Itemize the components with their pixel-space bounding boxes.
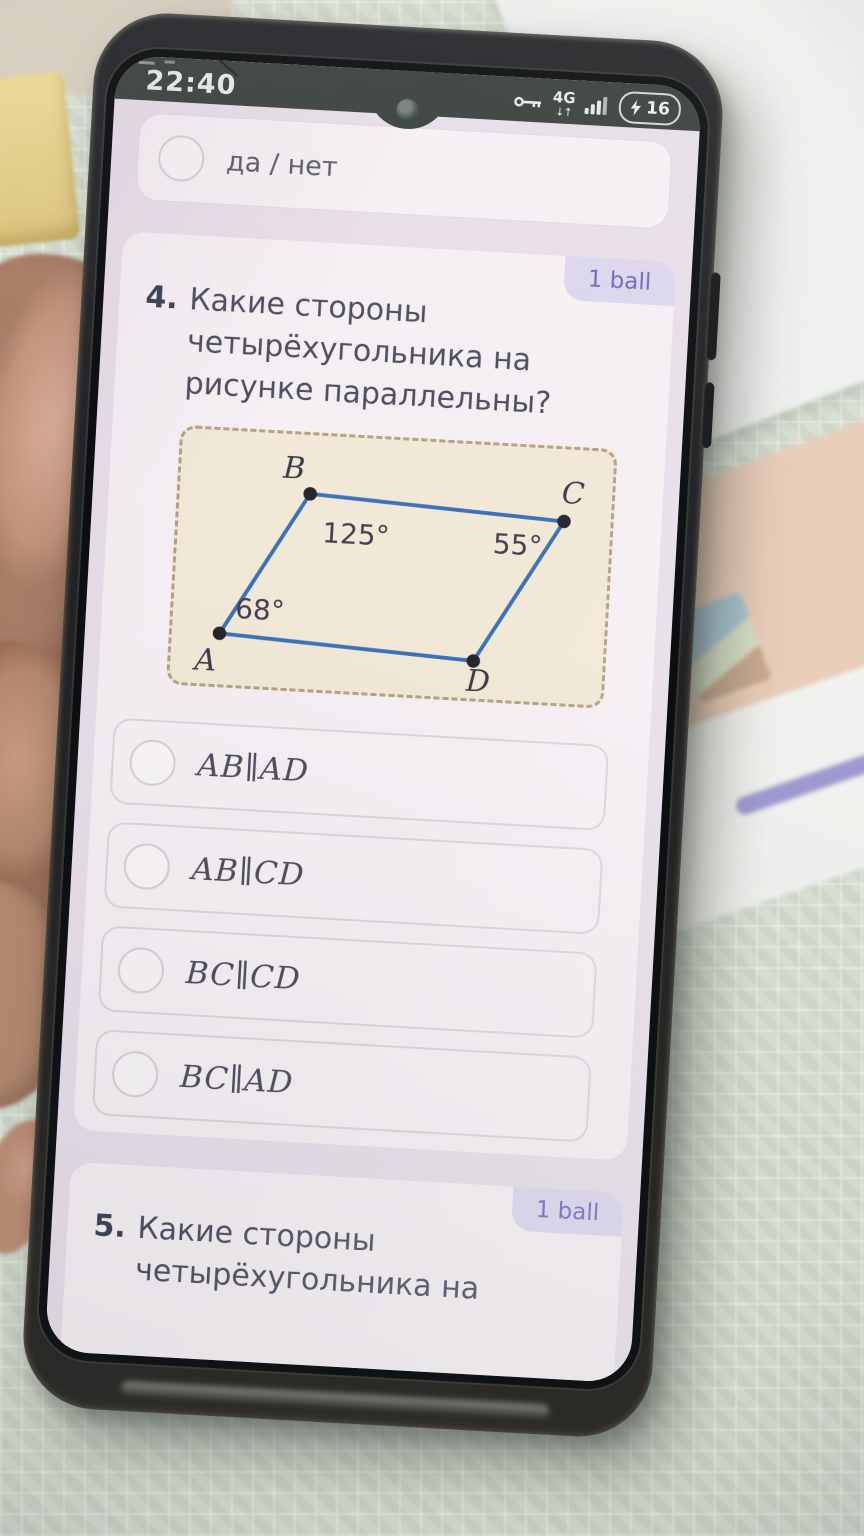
vertex-label-B: B	[281, 451, 306, 487]
clock: 22:40	[145, 65, 238, 101]
answer-option[interactable]: AB∥CD	[103, 821, 603, 935]
answer-option[interactable]: AB∥AD	[109, 718, 609, 832]
radio-button[interactable]	[157, 134, 205, 182]
vertex-label-A: A	[191, 642, 217, 678]
charging-icon	[630, 99, 643, 116]
vertex-label-D: D	[464, 663, 491, 699]
radio-button[interactable]	[111, 1050, 159, 1098]
option-label: BC∥CD	[185, 955, 302, 997]
option-label: AB∥AD	[196, 747, 310, 789]
question-text: Какие стороны четырёхугольника на	[134, 1208, 578, 1316]
front-camera	[396, 98, 419, 121]
parallelogram-diagram: B C A D 125° 55° 68°	[169, 428, 615, 706]
points-badge: 1 ball	[511, 1187, 625, 1237]
status-icons: 4G ↓↑ 16	[512, 85, 682, 126]
points-badge: 1 ball	[563, 256, 677, 306]
answer-option-yes-no[interactable]: да / нет	[135, 112, 673, 230]
option-label: AB∥CD	[191, 851, 306, 893]
angle-label-C: 55°	[492, 527, 543, 563]
answer-option[interactable]: BC∥AD	[92, 1029, 592, 1143]
photo-scene: 22:40 4G ↓↑	[0, 0, 864, 1536]
angle-label-A: 68°	[234, 592, 285, 628]
option-label: да / нет	[225, 145, 338, 182]
radio-button[interactable]	[128, 739, 176, 787]
vertex-label-C: C	[561, 476, 586, 512]
phone-screen: 22:40 4G ↓↑	[45, 55, 703, 1384]
screen-crack	[139, 61, 155, 65]
signal-bars-icon	[585, 95, 610, 116]
screen-crack	[165, 60, 175, 64]
question-5-card: 1 ball 5. Какие стороны четырёхугольника…	[57, 1162, 625, 1384]
radio-button[interactable]	[117, 946, 165, 994]
case-bottom-highlight	[121, 1381, 550, 1419]
option-label: BC∥AD	[179, 1059, 294, 1101]
question-number: 5.	[90, 1205, 139, 1291]
geometry-figure: B C A D 125° 55° 68°	[166, 425, 618, 709]
question-4-card: 1 ball 4. Какие стороны четырёхугольника…	[73, 231, 676, 1161]
question-text: Какие стороны четырёхугольника на рисунк…	[184, 279, 630, 429]
battery-level: 16	[646, 98, 671, 119]
angle-label-B: 125°	[322, 516, 391, 553]
phone: 22:40 4G ↓↑	[19, 10, 726, 1441]
answer-option[interactable]: BC∥CD	[98, 925, 598, 1039]
question-number: 4.	[140, 277, 191, 405]
battery-indicator: 16	[618, 91, 681, 126]
network-type-label: 4G	[552, 90, 576, 106]
mobile-network-indicator: 4G ↓↑	[552, 90, 576, 118]
vpn-key-icon	[512, 92, 543, 111]
question-5-heading: 5. Какие стороны четырёхугольника на	[64, 1162, 624, 1319]
network-arrows-icon: ↓↑	[555, 106, 572, 118]
parallelogram-outline	[219, 489, 565, 665]
radio-button[interactable]	[122, 842, 170, 890]
quiz-screen-content: да / нет 1 ball 4. Какие стороны четырёх…	[45, 99, 700, 1384]
